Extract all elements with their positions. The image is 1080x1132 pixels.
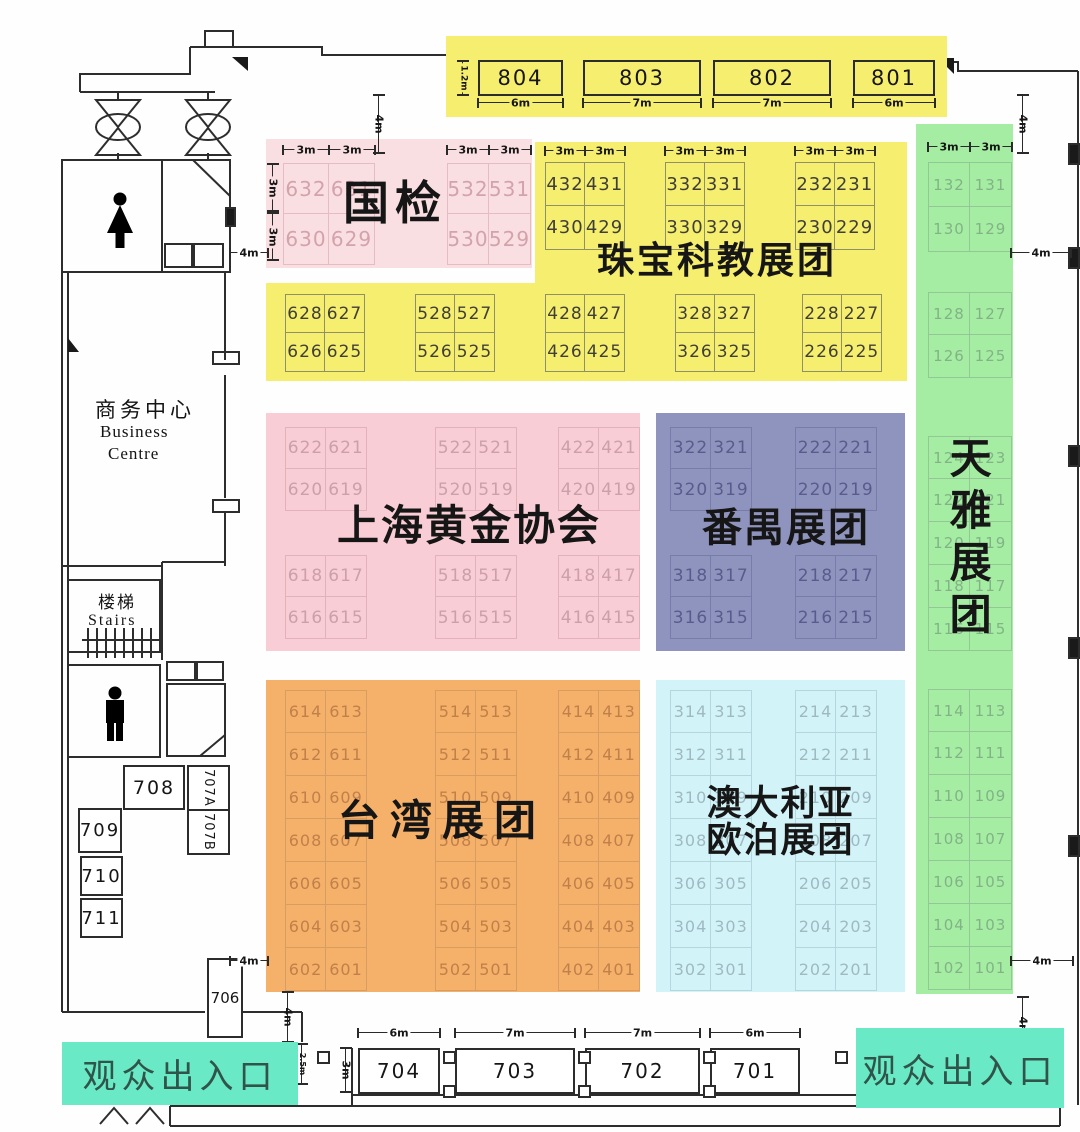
zone-title-opal-line1: 澳大利亚 — [656, 786, 905, 823]
booth-313: 313 — [711, 690, 752, 733]
booth-213: 213 — [836, 690, 877, 733]
zhubao-booths: 328327326325 — [675, 294, 755, 372]
tianya-booths: 132131130129 — [928, 162, 1012, 252]
dim-702-width: 7m — [585, 1032, 700, 1033]
shgold-booths: 522521520519 — [435, 427, 517, 511]
booth-315: 315 — [711, 597, 752, 639]
booth-222: 222 — [795, 427, 836, 469]
booth-108: 108 — [928, 818, 970, 861]
booth-216: 216 — [795, 597, 836, 639]
panyu-booths: 218217216215 — [795, 555, 877, 639]
booth-506: 506 — [435, 862, 476, 905]
booth-231: 231 — [835, 162, 875, 206]
booth-131: 131 — [970, 162, 1012, 207]
booth-626: 626 — [285, 333, 325, 372]
booth-419: 419 — [599, 469, 640, 511]
dim-strip-height: 1.2m — [462, 61, 463, 95]
booth-215: 215 — [836, 597, 877, 639]
booth-304: 304 — [670, 905, 711, 948]
booth-411: 411 — [599, 733, 640, 776]
booth-531: 531 — [489, 163, 531, 214]
shgold-booths: 418417416415 — [558, 555, 640, 639]
booth-232: 232 — [795, 162, 835, 206]
booth-422: 422 — [558, 427, 599, 469]
booth-514: 514 — [435, 690, 476, 733]
zone-title-guojian: 国检 — [343, 180, 447, 228]
booth-532: 532 — [447, 163, 489, 214]
dim-zhubao-3: 3m3m — [795, 150, 875, 151]
booth-327: 327 — [715, 294, 755, 333]
booth-622: 622 — [285, 427, 326, 469]
booth-132: 132 — [928, 162, 970, 207]
business-centre-label-cn: 商务中心 — [95, 394, 195, 424]
booth-317: 317 — [711, 555, 752, 597]
booth-418: 418 — [558, 555, 599, 597]
booth-605: 605 — [326, 862, 367, 905]
column-marker — [443, 1085, 456, 1098]
dim-4m-right-lower: 4m — [1011, 960, 1073, 961]
zone-title-tianya: 天雅展团 — [944, 436, 988, 644]
booth-228: 228 — [802, 294, 842, 333]
zone-title-opal: 澳大利亚 欧泊展团 — [656, 786, 905, 860]
booth-614: 614 — [285, 690, 326, 733]
booth-530: 530 — [447, 214, 489, 265]
column-marker — [578, 1051, 591, 1064]
booth-412: 412 — [558, 733, 599, 776]
panyu-booths: 222221220219 — [795, 427, 877, 511]
booth-603: 603 — [326, 905, 367, 948]
dim-4m-left-lower: 4m — [230, 960, 268, 961]
stairs-label-cn: 楼梯 — [98, 588, 136, 613]
booth-518: 518 — [435, 555, 476, 597]
entrance-right: 观众出入口 — [856, 1028, 1064, 1108]
booth-504: 504 — [435, 905, 476, 948]
booth-616: 616 — [285, 597, 326, 639]
dim-704-width: 6m — [358, 1032, 440, 1033]
booth-515: 515 — [476, 597, 517, 639]
zhubao-booths: 428427426425 — [545, 294, 625, 372]
dim-zhubao-1: 3m3m — [545, 150, 625, 151]
booth-502: 502 — [435, 948, 476, 991]
dim-4m-left-upper: 4m — [230, 252, 268, 253]
booth-127: 127 — [970, 292, 1012, 335]
booth-706: 706 — [207, 958, 243, 1038]
booth-401: 401 — [599, 948, 640, 991]
booth-512: 512 — [435, 733, 476, 776]
dim-703-width: 7m — [455, 1032, 575, 1033]
booth-221: 221 — [836, 427, 877, 469]
booth-211: 211 — [836, 733, 877, 776]
booth-628: 628 — [285, 294, 325, 333]
dim-4m-top-right: 4m — [1022, 95, 1023, 153]
booth-521: 521 — [476, 427, 517, 469]
man-icon — [106, 687, 124, 742]
booth-427: 427 — [585, 294, 625, 333]
booth-326: 326 — [675, 333, 715, 372]
shgold-booths: 518517516515 — [435, 555, 517, 639]
booth-528: 528 — [415, 294, 455, 333]
booth-314: 314 — [670, 690, 711, 733]
booth-710: 710 — [80, 856, 123, 896]
booth-402: 402 — [558, 948, 599, 991]
dim-701-width: 6m — [710, 1032, 800, 1033]
booth-505: 505 — [476, 862, 517, 905]
dim-guojian-left: 3m3m — [283, 149, 375, 150]
booth-612: 612 — [285, 733, 326, 776]
dim-802-width: 7m — [713, 102, 831, 103]
zhubao-booths: 628627626625 — [285, 294, 365, 372]
booth-602: 602 — [285, 948, 326, 991]
booth-405: 405 — [599, 862, 640, 905]
booth-126: 126 — [928, 335, 970, 378]
booth-428: 428 — [545, 294, 585, 333]
booth-318: 318 — [670, 555, 711, 597]
booth-130: 130 — [928, 207, 970, 252]
booth-527: 527 — [455, 294, 495, 333]
column-symbol-icon — [96, 100, 140, 155]
booth-225: 225 — [842, 333, 882, 372]
booth-212: 212 — [795, 733, 836, 776]
booth-413: 413 — [599, 690, 640, 733]
booth-312: 312 — [670, 733, 711, 776]
booth-102: 102 — [928, 947, 970, 990]
booth-608: 608 — [285, 819, 326, 862]
booth-113: 113 — [970, 689, 1012, 732]
dim-guojian-v1: 3m — [272, 164, 273, 211]
column-marker — [443, 1051, 456, 1064]
booth-229: 229 — [835, 206, 875, 250]
booth-525: 525 — [455, 333, 495, 372]
booth-328: 328 — [675, 294, 715, 333]
booth-618: 618 — [285, 555, 326, 597]
booth-409: 409 — [599, 776, 640, 819]
booth-431: 431 — [585, 162, 625, 206]
booth-105: 105 — [970, 861, 1012, 904]
booth-303: 303 — [711, 905, 752, 948]
tianya-booths: 1141131121111101091081071061051041031021… — [928, 689, 1012, 990]
column-marker — [703, 1051, 716, 1064]
booth-408: 408 — [558, 819, 599, 862]
booth-322: 322 — [670, 427, 711, 469]
booth-513: 513 — [476, 690, 517, 733]
booth-227: 227 — [842, 294, 882, 333]
booth-415: 415 — [599, 597, 640, 639]
booth-621: 621 — [326, 427, 367, 469]
booth-214: 214 — [795, 690, 836, 733]
booth-801: 801 — [853, 60, 935, 96]
zhubao-booths: 528527526525 — [415, 294, 495, 372]
booth-617: 617 — [326, 555, 367, 597]
booth-529: 529 — [489, 214, 531, 265]
dim-guojian-right: 3m3m — [447, 149, 531, 150]
booth-321: 321 — [711, 427, 752, 469]
booth-129: 129 — [970, 207, 1012, 252]
booth-410: 410 — [558, 776, 599, 819]
booth-421: 421 — [599, 427, 640, 469]
shgold-booths: 622621620619 — [285, 427, 367, 511]
zone-title-shgold: 上海黄金协会 — [337, 505, 601, 549]
booth-407: 407 — [599, 819, 640, 862]
booth-522: 522 — [435, 427, 476, 469]
booth-305: 305 — [711, 862, 752, 905]
booth-503: 503 — [476, 905, 517, 948]
zhubao-booths: 332331330329 — [665, 162, 745, 250]
column-symbol-icon — [186, 100, 230, 155]
booth-403: 403 — [599, 905, 640, 948]
business-centre-label-en1: Business — [100, 422, 168, 442]
booth-202: 202 — [795, 948, 836, 991]
booth-803: 803 — [583, 60, 701, 96]
booth-632: 632 — [283, 163, 329, 214]
zone-title-panyu: 番禺展团 — [702, 507, 870, 549]
booth-630: 630 — [283, 214, 329, 265]
booth-516: 516 — [435, 597, 476, 639]
dim-zhubao-2: 3m3m — [665, 150, 745, 151]
booth-404: 404 — [558, 905, 599, 948]
dim-4m-bottom-left: 4m — [287, 992, 288, 1042]
panyu-booths: 322321320319 — [670, 427, 752, 511]
booth-625: 625 — [325, 333, 365, 372]
booth-704: 704 — [358, 1048, 440, 1094]
booth-104: 104 — [928, 904, 970, 947]
booth-707b-label: 707B — [189, 811, 228, 853]
stairs-hatch-icon — [82, 628, 160, 658]
booth-316: 316 — [670, 597, 711, 639]
column-marker — [317, 1051, 330, 1064]
booth-203: 203 — [836, 905, 877, 948]
column-marker — [578, 1085, 591, 1098]
booth-711: 711 — [80, 898, 123, 938]
booth-110: 110 — [928, 775, 970, 818]
shgold-booths: 422421420419 — [558, 427, 640, 511]
booth-205: 205 — [836, 862, 877, 905]
booth-417: 417 — [599, 555, 640, 597]
booth-606: 606 — [285, 862, 326, 905]
booth-707ab: 707A 707B — [187, 765, 230, 855]
booth-302: 302 — [670, 948, 711, 991]
booth-804: 804 — [478, 60, 563, 96]
dim-801-width: 6m — [853, 102, 935, 103]
booth-501: 501 — [476, 948, 517, 991]
business-centre-label-en2: Centre — [108, 444, 159, 464]
booth-103: 103 — [970, 904, 1012, 947]
dim-bottom-25m: 2.5m — [301, 1044, 302, 1084]
booth-206: 206 — [795, 862, 836, 905]
entrance-left: 观众出入口 — [62, 1042, 298, 1105]
booth-611: 611 — [326, 733, 367, 776]
booth-109: 109 — [970, 775, 1012, 818]
booth-702: 702 — [585, 1048, 700, 1094]
booth-802: 802 — [713, 60, 831, 96]
booth-331: 331 — [705, 162, 745, 206]
taiwan-booths: 4144134124114104094084074064054044034024… — [558, 690, 640, 991]
booth-112: 112 — [928, 732, 970, 775]
booth-114: 114 — [928, 689, 970, 732]
booth-301: 301 — [711, 948, 752, 991]
booth-217: 217 — [836, 555, 877, 597]
booth-707a-label: 707A — [189, 767, 228, 811]
guojian-booths-right: 532531530529 — [447, 163, 531, 265]
booth-701: 701 — [710, 1048, 800, 1094]
booth-406: 406 — [558, 862, 599, 905]
booth-432: 432 — [545, 162, 585, 206]
booth-226: 226 — [802, 333, 842, 372]
booth-425: 425 — [585, 333, 625, 372]
booth-101: 101 — [970, 947, 1012, 990]
booth-511: 511 — [476, 733, 517, 776]
booth-604: 604 — [285, 905, 326, 948]
stairs-label-en: Stairs — [88, 612, 136, 630]
booth-128: 128 — [928, 292, 970, 335]
booth-111: 111 — [970, 732, 1012, 775]
dim-bottom-3m: 3m — [345, 1048, 346, 1092]
column-marker — [703, 1085, 716, 1098]
booth-311: 311 — [711, 733, 752, 776]
dim-guojian-v2: 3m — [272, 213, 273, 260]
dim-803-width: 7m — [583, 102, 701, 103]
booth-204: 204 — [795, 905, 836, 948]
booth-703: 703 — [455, 1048, 575, 1094]
booth-709: 709 — [78, 808, 122, 853]
booth-325: 325 — [715, 333, 755, 372]
tianya-booths: 128127126125 — [928, 292, 1012, 378]
booth-106: 106 — [928, 861, 970, 904]
booth-708: 708 — [123, 765, 185, 810]
zone-title-zhubao: 珠宝科教展团 — [597, 243, 837, 282]
woman-icon — [107, 193, 133, 249]
booth-627: 627 — [325, 294, 365, 333]
booth-306: 306 — [670, 862, 711, 905]
booth-332: 332 — [665, 162, 705, 206]
dim-4m-right-upper: 4m — [1011, 252, 1071, 253]
zhubao-booths: 232231230229 — [795, 162, 875, 250]
booth-201: 201 — [836, 948, 877, 991]
booth-620: 620 — [285, 469, 326, 511]
booth-125: 125 — [970, 335, 1012, 378]
booth-430: 430 — [545, 206, 585, 250]
zhubao-booths: 228227226225 — [802, 294, 882, 372]
booth-610: 610 — [285, 776, 326, 819]
booth-107: 107 — [970, 818, 1012, 861]
booth-526: 526 — [415, 333, 455, 372]
booth-615: 615 — [326, 597, 367, 639]
booth-613: 613 — [326, 690, 367, 733]
exhibition-floor-plan: 804 803 802 801 6m 7m 7m 6m 1.2m 3m3m 3m… — [0, 0, 1080, 1132]
door-arc-icon — [100, 1108, 164, 1124]
dim-tianya-top: 3m3m — [928, 146, 1012, 147]
zhubao-booths: 432431430429 — [545, 162, 625, 250]
zone-title-opal-line2: 欧泊展团 — [656, 823, 905, 860]
dim-804-width: 6m — [478, 102, 563, 103]
panyu-booths: 318317316315 — [670, 555, 752, 639]
booth-601: 601 — [326, 948, 367, 991]
booth-218: 218 — [795, 555, 836, 597]
booth-517: 517 — [476, 555, 517, 597]
booth-416: 416 — [558, 597, 599, 639]
booth-426: 426 — [545, 333, 585, 372]
dim-4m-top-left: 4m — [378, 95, 379, 153]
zone-title-taiwan: 台湾展团 — [338, 800, 546, 844]
column-marker — [835, 1051, 848, 1064]
booth-414: 414 — [558, 690, 599, 733]
shgold-booths: 618617616615 — [285, 555, 367, 639]
